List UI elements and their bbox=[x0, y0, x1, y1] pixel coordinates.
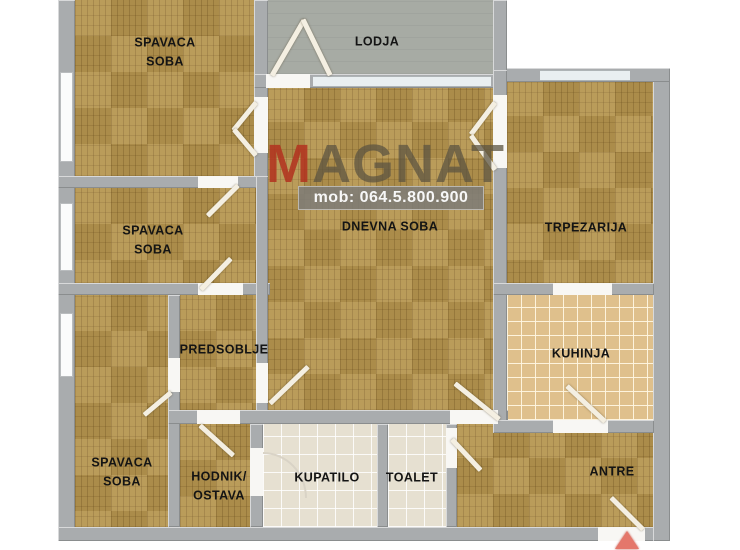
room-label-entry: ANTRE bbox=[589, 463, 634, 482]
room-label-bedroom-middle: SPAVACASOBA bbox=[122, 221, 183, 259]
room-label-dining: TRPEZARIJA bbox=[545, 219, 627, 238]
phone-badge: mob: 064.5.800.900 bbox=[298, 186, 484, 210]
window bbox=[60, 203, 73, 271]
wall-lodja-right bbox=[493, 0, 507, 80]
floor-plan: SPAVACASOBA LODJA DNEVNA SOBA TRPEZARIJA… bbox=[0, 0, 740, 550]
door-opening bbox=[553, 420, 608, 433]
door-opening bbox=[256, 363, 268, 403]
window bbox=[540, 70, 630, 81]
brand-logo: MAGNAT bbox=[266, 140, 506, 188]
room-label-bedroom-top: SPAVACASOBA bbox=[134, 33, 195, 71]
room-label-kitchen: KUHINJA bbox=[552, 345, 610, 364]
door-opening bbox=[168, 358, 180, 392]
brand-logo-initial: M bbox=[266, 134, 312, 194]
room-bedroom-bottom-floor bbox=[75, 295, 168, 527]
door-opening bbox=[553, 283, 612, 295]
window bbox=[60, 313, 73, 377]
wall-right-outer bbox=[653, 70, 670, 541]
room-label-living: DNEVNA SOBA bbox=[342, 218, 438, 237]
room-label-corridor: HODNIK/OSTAVA bbox=[191, 467, 247, 505]
entry-arrow-icon bbox=[615, 531, 639, 549]
room-label-bathroom: KUPATILO bbox=[294, 469, 359, 488]
wall-bottom-outer bbox=[58, 527, 670, 541]
window bbox=[313, 76, 491, 87]
room-label-lodja: LODJA bbox=[355, 33, 399, 52]
door-opening bbox=[446, 428, 457, 468]
door-opening bbox=[197, 410, 240, 424]
room-label-bedroom-bottom: SPAVACASOBA bbox=[91, 453, 152, 491]
room-label-toilet: TOALET bbox=[386, 469, 438, 488]
room-bedroom-top-floor bbox=[75, 0, 254, 176]
window bbox=[60, 72, 73, 162]
door-opening bbox=[250, 448, 263, 496]
room-dining-floor bbox=[507, 80, 653, 283]
watermark: MAGNAT mob: 064.5.800.900 bbox=[266, 140, 506, 210]
room-label-hallway: PREDSOBLJE bbox=[180, 341, 269, 360]
brand-logo-rest: AGNAT bbox=[312, 134, 505, 194]
